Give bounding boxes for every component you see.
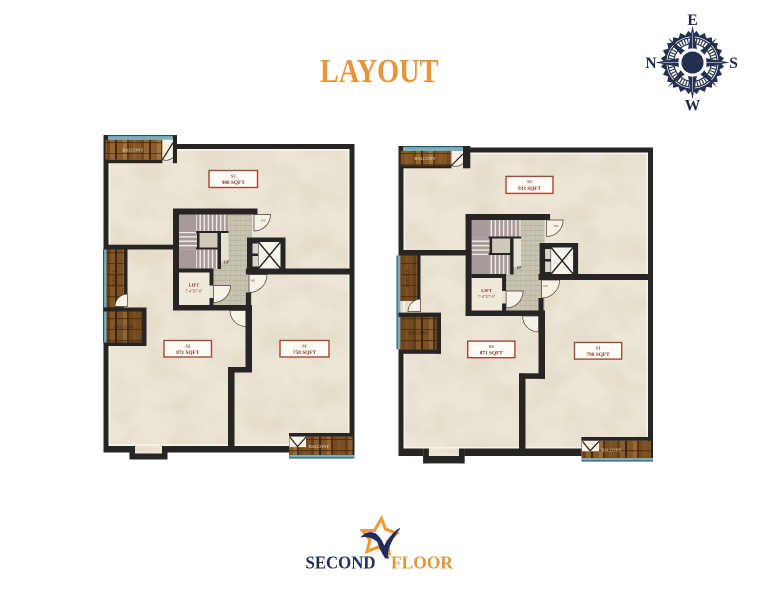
svg-text:LIFT: LIFT — [481, 288, 492, 293]
svg-text:871 SQFT: 871 SQFT — [176, 350, 200, 356]
svg-text:S1: S1 — [596, 345, 602, 350]
svg-text:BALCONY: BALCONY — [414, 156, 436, 161]
svg-text:BALCONY: BALCONY — [114, 325, 134, 330]
svg-text:WD: WD — [543, 285, 548, 288]
svg-text:BALCONY: BALCONY — [408, 331, 428, 336]
svg-text:7'-4"X7'-0": 7'-4"X7'-0" — [185, 290, 203, 294]
svg-text:WD: WD — [251, 280, 256, 283]
svg-text:N: N — [645, 55, 656, 72]
svg-text:S3: S3 — [527, 179, 533, 184]
svg-text:WD: WD — [554, 225, 559, 228]
svg-text:BALCONY: BALCONY — [309, 444, 329, 449]
svg-text:FLOOR: FLOOR — [391, 553, 453, 573]
svg-text:UP: UP — [517, 266, 523, 270]
svg-text:BALCONY: BALCONY — [122, 148, 144, 153]
svg-text:S2: S2 — [489, 344, 495, 349]
svg-text:LIFT: LIFT — [189, 283, 200, 288]
svg-text:WD: WD — [232, 308, 237, 311]
svg-text:WD: WD — [261, 220, 266, 223]
svg-text:SECOND: SECOND — [306, 553, 376, 573]
svg-text:7'-4"X7'-0": 7'-4"X7'-0" — [478, 295, 496, 299]
svg-text:S3: S3 — [231, 173, 237, 178]
svg-text:SERVICE: SERVICE — [405, 269, 410, 287]
svg-text:S1: S1 — [302, 343, 308, 348]
svg-text:S: S — [729, 55, 738, 72]
svg-text:LAYOUT: LAYOUT — [320, 53, 439, 90]
svg-text:906 SQFT: 906 SQFT — [222, 180, 246, 186]
svg-text:UP: UP — [224, 261, 230, 265]
svg-text:SERVICE: SERVICE — [111, 269, 116, 287]
svg-text:758 SQFT: 758 SQFT — [293, 350, 317, 356]
svg-text:BALCONY: BALCONY — [601, 447, 621, 452]
svg-text:W: W — [685, 98, 701, 115]
svg-text:S2: S2 — [185, 343, 191, 348]
svg-text:E: E — [687, 12, 697, 29]
svg-text:933 SQFT: 933 SQFT — [518, 186, 542, 192]
svg-text:798 SQFT: 798 SQFT — [587, 352, 611, 358]
svg-text:WD: WD — [525, 313, 530, 316]
svg-text:871 SQFT: 871 SQFT — [480, 351, 504, 357]
